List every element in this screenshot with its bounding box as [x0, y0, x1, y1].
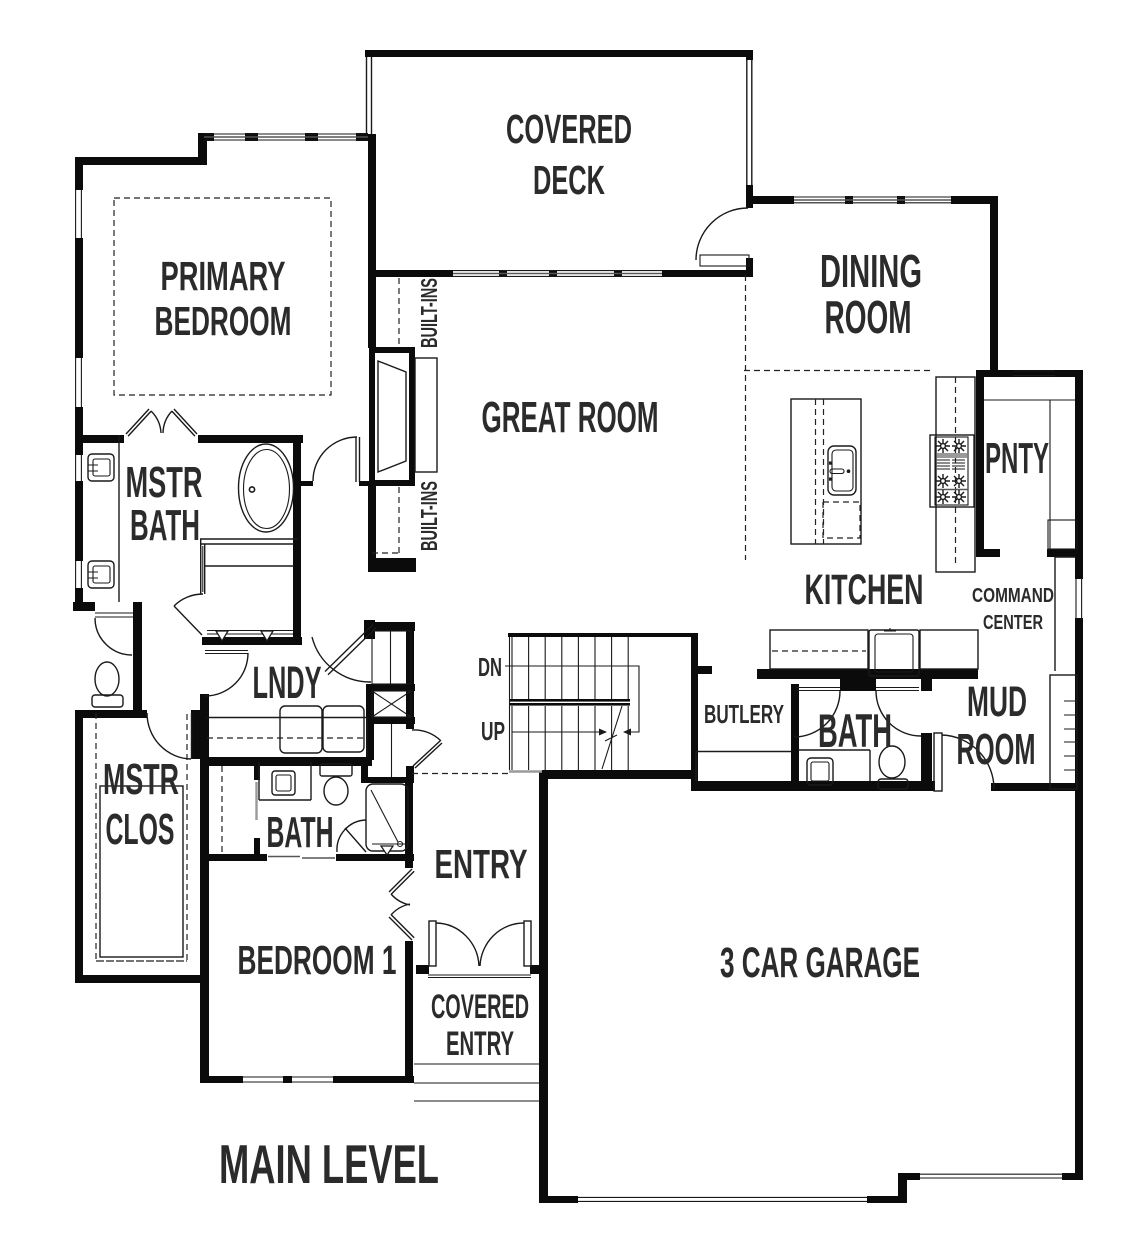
svg-text:ROOM: ROOM: [825, 291, 912, 343]
svg-text:CENTER: CENTER: [983, 611, 1043, 634]
svg-text:COVERED: COVERED: [506, 106, 632, 152]
svg-text:MUD: MUD: [967, 679, 1027, 726]
svg-text:BATH: BATH: [130, 501, 200, 550]
svg-text:BEDROOM: BEDROOM: [155, 298, 292, 344]
svg-text:ENTRY: ENTRY: [435, 841, 528, 887]
svg-text:BUILT-INS: BUILT-INS: [416, 278, 442, 348]
svg-text:CLOS: CLOS: [106, 805, 175, 854]
svg-text:BUILT-INS: BUILT-INS: [416, 481, 442, 551]
svg-text:MSTR: MSTR: [126, 458, 203, 507]
svg-text:ENTRY: ENTRY: [446, 1025, 514, 1063]
svg-text:PNTY: PNTY: [985, 434, 1049, 483]
svg-text:COVERED: COVERED: [431, 988, 529, 1026]
svg-text:DECK: DECK: [533, 157, 605, 203]
svg-text:KITCHEN: KITCHEN: [805, 567, 924, 614]
svg-text:BATH: BATH: [818, 704, 892, 757]
svg-text:MAIN LEVEL: MAIN LEVEL: [219, 1133, 439, 1195]
svg-text:LNDY: LNDY: [253, 657, 322, 708]
svg-text:GREAT ROOM: GREAT ROOM: [482, 393, 659, 442]
svg-text:PRIMARY: PRIMARY: [161, 253, 286, 299]
svg-text:COMMAND: COMMAND: [972, 584, 1054, 607]
svg-text:BEDROOM 1: BEDROOM 1: [238, 937, 397, 983]
svg-text:UP: UP: [481, 716, 505, 746]
svg-text:ROOM: ROOM: [957, 725, 1036, 774]
svg-text:BUTLERY: BUTLERY: [704, 699, 784, 729]
svg-text:BATH: BATH: [267, 808, 334, 857]
svg-text:3 CAR GARAGE: 3 CAR GARAGE: [720, 940, 920, 987]
svg-text:MSTR: MSTR: [103, 755, 179, 804]
svg-text:DN: DN: [478, 652, 502, 682]
svg-text:DINING: DINING: [820, 245, 922, 297]
